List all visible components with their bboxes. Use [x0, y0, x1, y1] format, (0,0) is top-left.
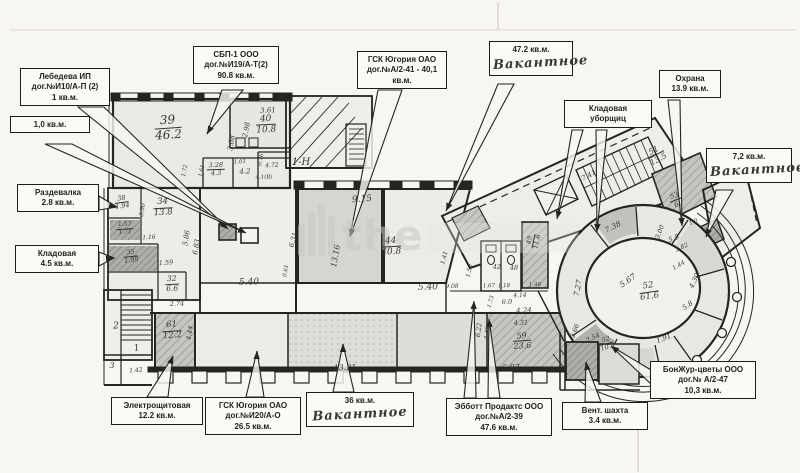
callout-text: Лебедева ИП [24, 72, 106, 82]
callout-text: ГСК Югория ОАО [361, 55, 443, 65]
callout-text: 2.8 кв.м. [21, 198, 95, 208]
callout-text: дог.№И20/А-О [209, 411, 297, 421]
callout-text: дог.№А/2-39 [450, 412, 548, 422]
callout-text: Эбботт Продактс ООО [450, 402, 548, 412]
callout-text: 47.6 кв.м. [450, 423, 548, 433]
callout-v10: 1,0 кв.м. [10, 116, 90, 133]
callout-text: Кладовая [568, 104, 648, 114]
callout-text: 1,0 кв.м. [14, 120, 86, 130]
callout-text: уборщиц [568, 114, 648, 124]
callout-bonjour: БонЖур-цветы ОООдог.№ А/2-4710,3 кв.м. [650, 361, 756, 399]
callout-text: 26.5 кв.м. [209, 422, 297, 432]
callout-lebedeva: Лебедева ИПдог.№И10/А-П (2)1 кв.м. [20, 68, 110, 106]
callout-text: дог.№И10/А-П (2) [24, 82, 106, 92]
callout-text: 10,3 кв.м. [654, 386, 752, 396]
callout-text: СБП-1 ООО [197, 50, 275, 60]
callout-v72: 7,2 кв.м.Вакантное [706, 148, 792, 183]
callout-text: 13.9 кв.м. [663, 84, 717, 94]
callout-razdevalka: Раздевалка2.8 кв.м. [17, 184, 99, 212]
callout-gsk20: ГСК Югория ОАОдог.№И20/А-О26.5 кв.м. [205, 397, 301, 435]
callout-text: Раздевалка [21, 188, 95, 198]
handwritten-note: Вакантное [710, 160, 789, 181]
callout-abbott: Эбботт Продактс ОООдог.№А/2-3947.6 кв.м. [446, 398, 552, 436]
callout-text: 12.2 кв.м. [115, 411, 199, 421]
floor-plan-scan: the 3946.24010.83.284.33413.8381.941.571… [0, 0, 800, 473]
handwritten-note: Вакантное [493, 53, 570, 74]
callouts-layer: СБП-1 ОООдог.№И19/А-Т(2)90.8 кв.м.Лебеде… [0, 0, 800, 473]
callout-v472: 47.2 кв.м.Вакантное [489, 41, 573, 76]
callout-text: Вент. шахта [566, 406, 644, 416]
callout-ohrana: Охрана13.9 кв.м. [659, 70, 721, 98]
callout-text: Электрощитовая [115, 401, 199, 411]
callout-text: дог.№И19/А-Т(2) [197, 60, 275, 70]
callout-text: 4.5 кв.м. [19, 259, 95, 269]
handwritten-note: Вакантное [310, 404, 411, 427]
callout-sbp1: СБП-1 ОООдог.№И19/А-Т(2)90.8 кв.м. [193, 46, 279, 84]
callout-text: 3.4 кв.м. [566, 416, 644, 426]
callout-text: дог.№А/2-41 - 40,1 [361, 65, 443, 75]
callout-elektro: Электрощитовая12.2 кв.м. [111, 397, 203, 425]
callout-kladovaya45: Кладовая4.5 кв.м. [15, 245, 99, 273]
callout-klad_ub: Кладоваяуборщиц [564, 100, 652, 128]
callout-text: БонЖур-цветы ООО [654, 365, 752, 375]
callout-v36: 36 кв.м.Вакантное [306, 392, 414, 427]
callout-text: дог.№ А/2-47 [654, 375, 752, 385]
callout-text: 1 кв.м. [24, 93, 106, 103]
callout-text: Охрана [663, 74, 717, 84]
callout-text: кв.м. [361, 76, 443, 86]
callout-text: 90.8 кв.м. [197, 71, 275, 81]
callout-text: ГСК Югория ОАО [209, 401, 297, 411]
callout-gsk41: ГСК Югория ОАОдог.№А/2-41 - 40,1кв.м. [357, 51, 447, 89]
callout-vent: Вент. шахта3.4 кв.м. [562, 402, 648, 430]
callout-text: Кладовая [19, 249, 95, 259]
